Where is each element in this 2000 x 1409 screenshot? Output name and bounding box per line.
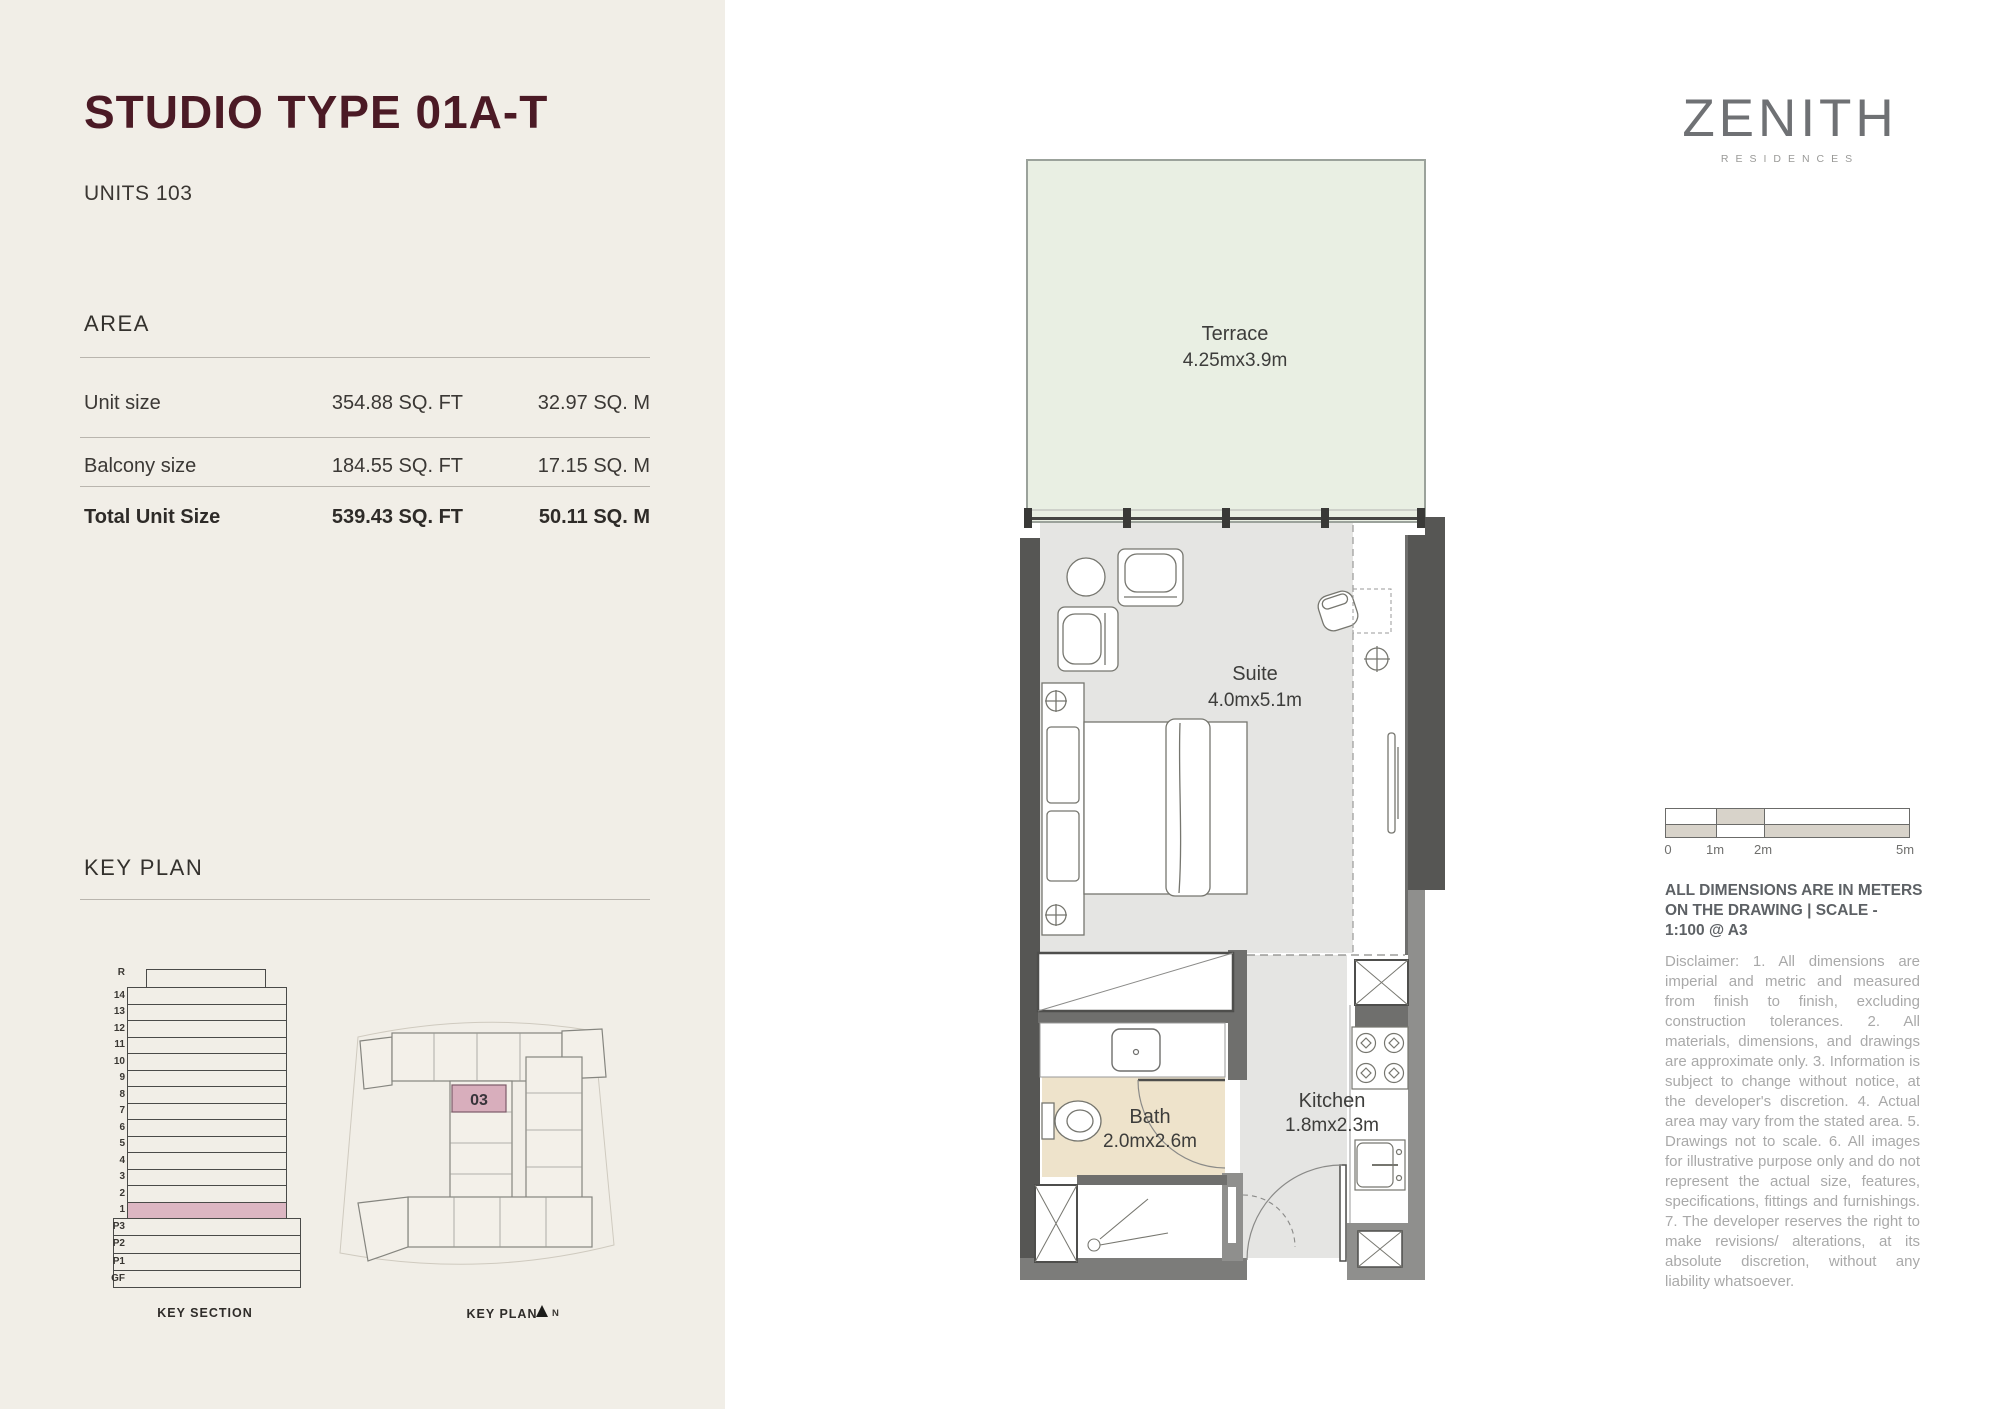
wall-left (1020, 538, 1040, 1280)
key-section-podium-row (113, 1235, 301, 1253)
note-line: ALL DIMENSIONS ARE IN METERS (1665, 881, 1927, 901)
brand-logo: ZENITH (1665, 88, 1915, 149)
terrace-label: Terrace (1202, 323, 1269, 345)
armchair-top (1118, 549, 1183, 606)
bath-dims: 2.0mx2.6m (1103, 1131, 1197, 1152)
area-row-sqm: 32.97 SQ. M (460, 392, 650, 415)
key-section-floor-row (127, 1070, 287, 1088)
area-row-sqm: 17.15 SQ. M (460, 455, 650, 478)
brand-sub-label: RESIDENCES (1665, 153, 1915, 165)
stove (1352, 1027, 1408, 1089)
key-section-diagram: KEY SECTION R1413121110987654321P3P2P1GF (95, 960, 315, 1332)
area-row-sqm: 50.11 SQ. M (460, 506, 650, 529)
key-section-floor-row (127, 1020, 287, 1038)
area-row-label: Balcony size (84, 455, 196, 478)
key-section-floor-label: P3 (95, 1221, 125, 1232)
key-section-podium-row (113, 1270, 301, 1288)
floorplan-drawing: Terrace 4.25mx3.9m Suite 4.0mx5.1m Bath … (1020, 155, 1445, 1295)
north-arrow-icon (536, 1305, 548, 1317)
key-section-floor-label: 2 (95, 1188, 125, 1199)
armchair-left (1058, 607, 1118, 671)
key-section-floor-row (127, 987, 287, 1005)
north-label: N (552, 1308, 559, 1319)
key-section-floor-row (127, 1037, 287, 1055)
key-section-floor-label: R (95, 967, 125, 978)
key-section-floor-label: P2 (95, 1238, 125, 1249)
unit-number-label: 03 (470, 1092, 488, 1109)
closet (1038, 953, 1233, 1011)
key-plan-mini-diagram: 03 KEY PLAN N (330, 945, 620, 1330)
bath-label: Bath (1129, 1106, 1170, 1128)
key-section-floor-row (127, 1169, 287, 1187)
note-line: ON THE DRAWING | SCALE - (1665, 901, 1927, 921)
key-section-caption: KEY SECTION (95, 1306, 315, 1320)
dimensions-note-heading: ALL DIMENSIONS ARE IN METERS ON THE DRAW… (1665, 881, 1927, 941)
hall-floor (1353, 522, 1405, 953)
note-line: 1:100 @ A3 (1665, 921, 1927, 941)
key-section-floor-row (127, 1004, 287, 1022)
key-plan-heading: KEY PLAN (84, 855, 203, 881)
divider (80, 899, 650, 900)
key-section-roof (146, 969, 266, 988)
mini-wing-top-left (360, 1037, 392, 1089)
shower-shaft (1035, 1185, 1077, 1262)
key-section-floor-row (127, 1185, 287, 1203)
suite-dims: 4.0mx5.1m (1208, 690, 1302, 711)
round-table (1067, 558, 1105, 596)
kitchen-shaft-bottom (1358, 1231, 1402, 1267)
brand-block: ZENITH RESIDENCES (1665, 88, 1915, 165)
kitchen-dims: 1.8mx2.3m (1285, 1115, 1379, 1136)
terrace-dims: 4.25mx3.9m (1183, 350, 1288, 371)
key-section-floor-label: 9 (95, 1072, 125, 1083)
key-section-floor-label: 7 (95, 1105, 125, 1116)
scale-tick-5m: 5m (1896, 842, 1914, 857)
area-row-sqft: 539.43 SQ. FT (250, 506, 463, 529)
area-row-unit-size: Unit size 354.88 SQ. FT 32.97 SQ. M (80, 392, 650, 414)
mini-column-right (526, 1057, 582, 1205)
key-section-floor-label: 6 (95, 1122, 125, 1133)
kitchen-label: Kitchen (1299, 1090, 1366, 1112)
key-section-floor-row (127, 1103, 287, 1121)
units-label: UNITS 103 (84, 182, 192, 206)
toilet (1042, 1101, 1101, 1141)
key-section-floor-label: 14 (95, 990, 125, 1001)
wall-right-lower (1408, 890, 1425, 1280)
mini-wing-bottom-left (358, 1197, 408, 1261)
key-section-floor-row (127, 1053, 287, 1071)
wall-closet-bottom (1038, 1011, 1233, 1023)
page-title: STUDIO TYPE 01A-T (84, 85, 548, 139)
key-section-floor-label: 1 (95, 1204, 125, 1215)
area-row-label: Unit size (84, 392, 161, 415)
key-section-floor-label: 11 (95, 1039, 125, 1050)
key-section-floor-label: 12 (95, 1023, 125, 1034)
shower-drain (1088, 1199, 1168, 1251)
wall-bath-shower (1077, 1175, 1227, 1185)
key-section-floor-label: 4 (95, 1155, 125, 1166)
key-section-floor-label: 3 (95, 1171, 125, 1182)
key-section-podium-row (113, 1218, 301, 1236)
key-section-floor-label: 8 (95, 1089, 125, 1100)
area-row-sqft: 184.55 SQ. FT (250, 455, 463, 478)
key-section-floor-label: 5 (95, 1138, 125, 1149)
area-row-label: Total Unit Size (84, 506, 220, 529)
kitchen-sink (1355, 1140, 1405, 1190)
area-heading: AREA (84, 311, 150, 337)
door-jamb (1228, 1187, 1236, 1243)
kitchen-shaft-top (1355, 960, 1408, 1005)
divider (80, 357, 650, 358)
key-section-podium-row (113, 1253, 301, 1271)
divider (80, 486, 650, 487)
wall-right-slab (1408, 535, 1445, 890)
key-section-floor-label: 10 (95, 1056, 125, 1067)
key-section-floor-row (127, 1086, 287, 1104)
area-row-sqft: 354.88 SQ. FT (250, 392, 463, 415)
wall-kitchen-strip (1355, 1005, 1408, 1027)
key-section-floor-row (127, 1136, 287, 1154)
wall-corner-stub (1425, 517, 1445, 537)
key-section-floor-label: GF (95, 1273, 125, 1284)
scale-tick-2m: 2m (1754, 842, 1772, 857)
bath-vanity (1040, 1023, 1225, 1077)
scale-tick-1m: 1m (1706, 842, 1724, 857)
wall-right-thin (1405, 535, 1408, 955)
area-row-balcony-size: Balcony size 184.55 SQ. FT 17.15 SQ. M (80, 455, 650, 477)
key-section-floor-label: P1 (95, 1256, 125, 1267)
scale-tick-0: 0 (1664, 842, 1671, 857)
suite-label: Suite (1232, 663, 1278, 685)
disclaimer-text: Disclaimer: 1. All dimensions are imperi… (1665, 952, 1920, 1292)
scale-bar: 0 1m 2m 5m (1665, 808, 1910, 838)
area-row-total: Total Unit Size 539.43 SQ. FT 50.11 SQ. … (80, 506, 650, 528)
divider (80, 437, 650, 438)
key-section-floor-label: 13 (95, 1006, 125, 1017)
key-section-floor-row (127, 1202, 287, 1220)
key-plan-mini-caption: KEY PLAN (467, 1307, 538, 1321)
key-section-floor-row (127, 1119, 287, 1137)
key-section-floor-row (127, 1152, 287, 1170)
